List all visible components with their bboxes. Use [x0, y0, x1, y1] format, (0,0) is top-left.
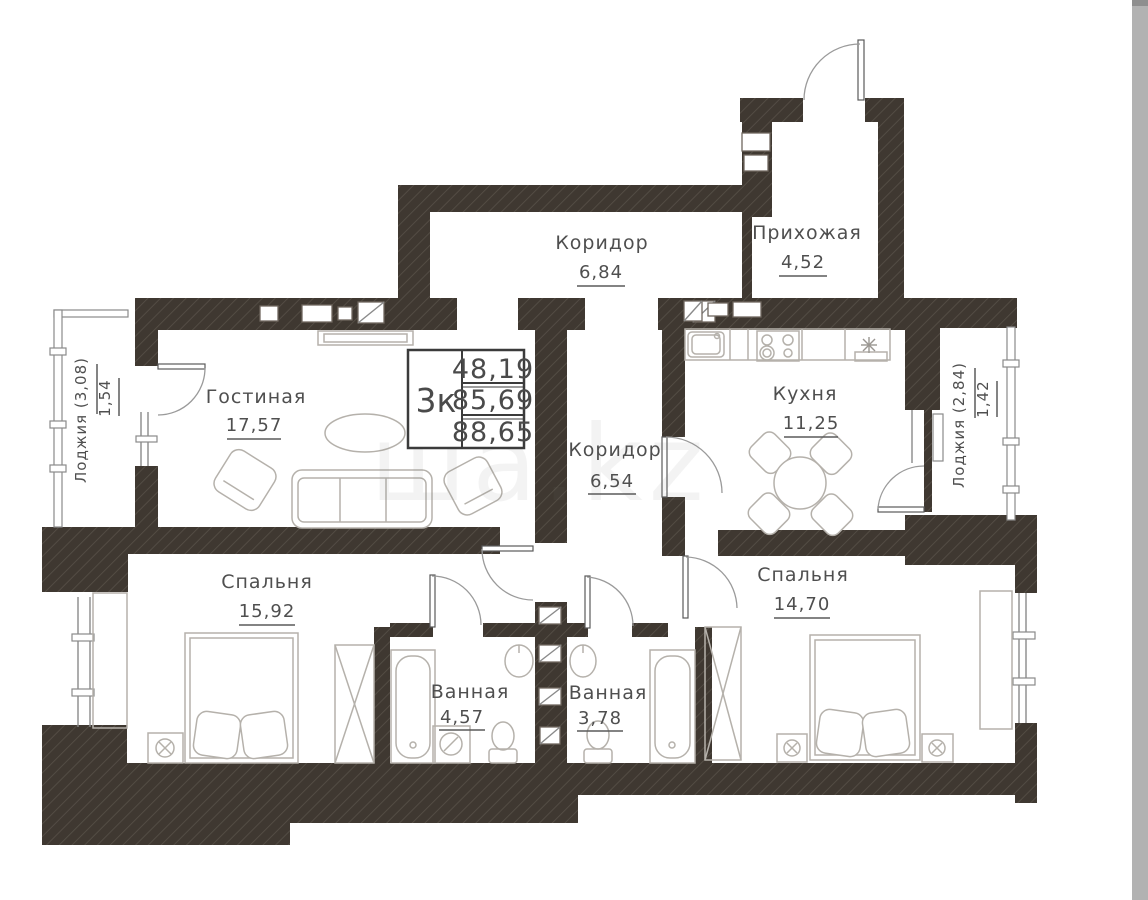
svg-text:14,70: 14,70 — [774, 594, 831, 615]
svg-text:4,52: 4,52 — [781, 252, 825, 273]
dining-table — [774, 457, 826, 509]
nightstand — [148, 733, 183, 763]
bathroom-sink — [505, 645, 533, 677]
bedroom-left-door — [482, 546, 533, 600]
svg-text:Лоджия (2,84): Лоджия (2,84) — [950, 362, 968, 488]
svg-text:Гостиная: Гостиная — [206, 386, 307, 408]
sink — [688, 332, 724, 357]
bedroom-right-window — [980, 591, 1035, 729]
kitchen-balcony-door — [878, 466, 924, 512]
scrollbar-thumb — [1132, 0, 1148, 6]
floor-plan-drawing: ша.kz 3к 48,19 85,69 88,65 Прихожая 4,52… — [0, 0, 1148, 900]
svg-text:6,84: 6,84 — [579, 262, 623, 283]
area-value-3: 88,65 — [452, 417, 534, 448]
svg-text:Спальня: Спальня — [757, 564, 849, 586]
tv-console — [318, 331, 413, 345]
bed-left — [185, 633, 298, 763]
svg-text:11,25: 11,25 — [783, 413, 840, 434]
area-value-2: 85,69 — [452, 385, 534, 416]
living-balcony-door — [158, 364, 205, 415]
label-corridor-top: Коридор 6,84 — [555, 232, 648, 286]
vent-star-icon — [861, 337, 877, 353]
nightstand — [922, 734, 953, 762]
svg-text:17,57: 17,57 — [226, 415, 283, 436]
armchair — [210, 446, 280, 514]
radiator — [93, 593, 127, 728]
svg-text:Спальня: Спальня — [221, 571, 313, 593]
dining-set — [745, 429, 856, 539]
bathtub — [650, 650, 695, 763]
svg-text:4,57: 4,57 — [440, 707, 484, 728]
wardrobe — [335, 645, 374, 763]
svg-text:Ванная: Ванная — [569, 682, 648, 704]
area-value-1: 48,19 — [452, 354, 534, 385]
bathroom-right-door — [585, 576, 633, 628]
entrance-door — [804, 40, 864, 100]
living-balcony-window — [135, 412, 158, 466]
bathtub — [391, 650, 435, 763]
label-kitchen: Кухня 11,25 — [773, 383, 840, 437]
kitchen-balcony-window — [905, 410, 943, 463]
bedroom-left-window — [72, 593, 127, 728]
svg-text:Прихожая: Прихожая — [752, 222, 862, 244]
label-loggia-left: Лоджия (3,08) 1,54 — [72, 357, 119, 483]
kitchen-counter — [685, 329, 890, 361]
label-loggia-right: Лоджия (2,84) 1,42 — [950, 362, 997, 488]
label-bathroom-left: Ванная 4,57 — [431, 681, 510, 730]
label-living-room: Гостиная 17,57 — [206, 386, 307, 439]
bedroom-right-door — [683, 556, 737, 618]
svg-text:Кухня: Кухня — [773, 383, 838, 405]
svg-text:Коридор: Коридор — [555, 232, 648, 254]
stove — [757, 331, 799, 361]
scrollbar[interactable] — [1132, 0, 1148, 900]
in-wall-icons — [260, 133, 770, 323]
washing-machine — [433, 726, 470, 763]
floor-plan-page: ша.kz 3к 48,19 85,69 88,65 Прихожая 4,52… — [0, 0, 1148, 900]
svg-text:6,54: 6,54 — [590, 471, 634, 492]
label-bathroom-right: Ванная 3,78 — [569, 682, 648, 731]
bathroom-sink — [570, 645, 596, 677]
label-hallway: Прихожая 4,52 — [752, 222, 862, 276]
svg-text:Ванная: Ванная — [431, 681, 510, 703]
svg-text:1,42: 1,42 — [974, 380, 992, 417]
bed-right — [810, 635, 920, 760]
toilet — [489, 722, 517, 763]
bathroom-left-door — [430, 575, 481, 627]
svg-text:3,78: 3,78 — [578, 708, 622, 729]
unit-type: 3к — [416, 381, 457, 420]
label-bedroom-left: Спальня 15,92 — [221, 571, 313, 625]
loggia-left-window — [54, 310, 62, 527]
svg-text:Лоджия (3,08): Лоджия (3,08) — [72, 357, 90, 483]
svg-text:1,54: 1,54 — [96, 379, 114, 416]
loggia-left-top-glazing — [54, 310, 128, 317]
unit-info-table: 3к 48,19 85,69 88,65 — [408, 350, 534, 448]
label-bedroom-right: Спальня 14,70 — [757, 564, 849, 618]
svg-text:Коридор: Коридор — [568, 439, 661, 461]
radiator — [980, 591, 1012, 729]
nightstand — [777, 734, 807, 762]
svg-text:15,92: 15,92 — [239, 601, 296, 622]
